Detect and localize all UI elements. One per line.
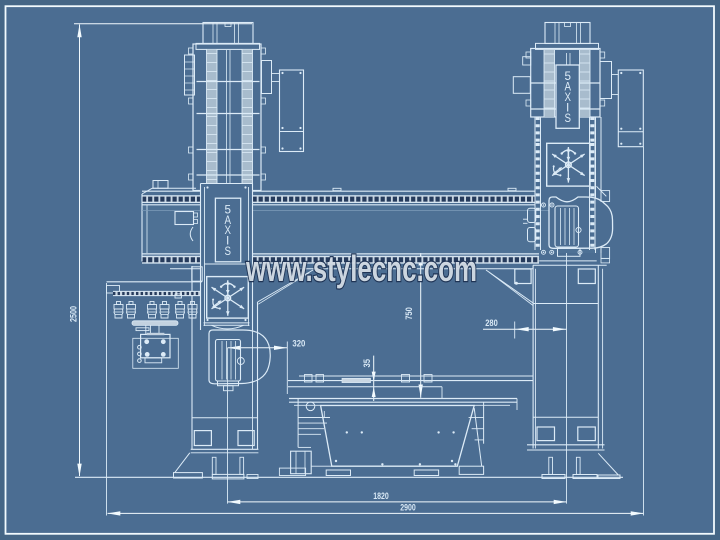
svg-text:1820: 1820 <box>373 491 389 501</box>
svg-text:280: 280 <box>485 318 498 328</box>
svg-text:2900: 2900 <box>400 503 416 513</box>
svg-text:750: 750 <box>404 307 414 320</box>
svg-text:35: 35 <box>362 359 372 368</box>
svg-text:320: 320 <box>292 338 305 348</box>
svg-text:www.stylecnc.com: www.stylecnc.com <box>245 248 477 289</box>
svg-text:S: S <box>224 244 231 258</box>
svg-text:S: S <box>564 111 571 125</box>
svg-text:2500: 2500 <box>69 306 79 322</box>
